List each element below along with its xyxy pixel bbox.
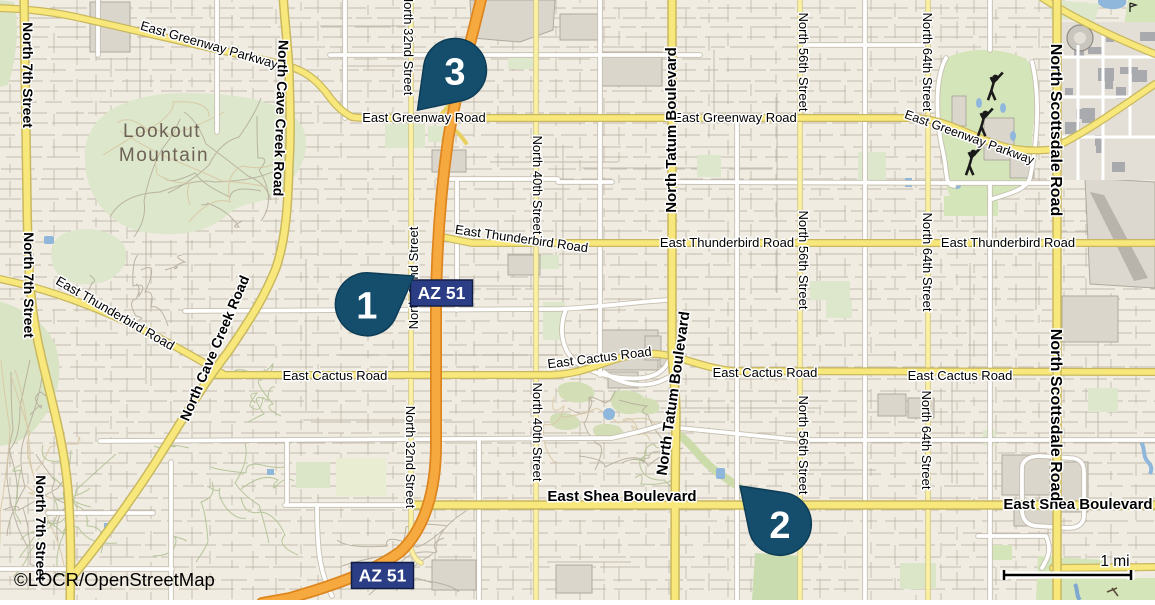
svg-text:East Thunderbird Road: East Thunderbird Road xyxy=(660,235,794,250)
svg-text:North 7th Street: North 7th Street xyxy=(20,22,36,128)
svg-text:East Greenway Road: East Greenway Road xyxy=(362,110,486,125)
svg-text:North Scottsdale Road: North Scottsdale Road xyxy=(1047,44,1064,216)
svg-text:East Shea Boulevard: East Shea Boulevard xyxy=(547,488,696,505)
svg-text:North 56th Street: North 56th Street xyxy=(796,13,811,112)
svg-text:Mountain: Mountain xyxy=(119,145,209,166)
svg-text:1 mi: 1 mi xyxy=(1100,553,1129,570)
svg-text:East Thunderbird Road: East Thunderbird Road xyxy=(941,235,1075,250)
svg-text:North 64th Street: North 64th Street xyxy=(920,213,935,312)
svg-text:East Cactus Road: East Cactus Road xyxy=(283,368,388,383)
svg-text:North 56th Street: North 56th Street xyxy=(796,211,811,310)
svg-text:North 32nd Street: North 32nd Street xyxy=(403,406,418,509)
svg-text:©LOCR/OpenStreetMap: ©LOCR/OpenStreetMap xyxy=(14,569,215,590)
svg-text:East Greenway Road: East Greenway Road xyxy=(673,110,797,125)
svg-text:North Tatum Boulevard: North Tatum Boulevard xyxy=(663,47,680,213)
svg-text:North 64th Street: North 64th Street xyxy=(920,13,935,112)
svg-text:AZ 51: AZ 51 xyxy=(359,566,407,586)
svg-text:North 64th Street: North 64th Street xyxy=(919,391,934,490)
svg-text:North 56th Street: North 56th Street xyxy=(796,396,811,495)
svg-text:3: 3 xyxy=(444,51,465,93)
svg-text:2: 2 xyxy=(769,505,790,547)
svg-text:East Cactus Road: East Cactus Road xyxy=(713,365,818,380)
svg-text:North 32nd Street: North 32nd Street xyxy=(401,0,416,96)
svg-text:North 7th Street: North 7th Street xyxy=(21,232,37,338)
svg-text:North Scottsdale Road: North Scottsdale Road xyxy=(1047,329,1064,501)
svg-text:North 7th Street: North 7th Street xyxy=(33,475,49,581)
svg-text:North 40th Street: North 40th Street xyxy=(530,136,545,235)
svg-text:North 40th Street: North 40th Street xyxy=(530,383,545,482)
svg-text:AZ 51: AZ 51 xyxy=(418,283,466,303)
svg-text:1: 1 xyxy=(356,286,377,328)
svg-text:East Shea Boulevard: East Shea Boulevard xyxy=(1003,496,1152,513)
svg-text:Lookout: Lookout xyxy=(123,121,201,142)
svg-text:East Cactus Road: East Cactus Road xyxy=(908,368,1013,383)
